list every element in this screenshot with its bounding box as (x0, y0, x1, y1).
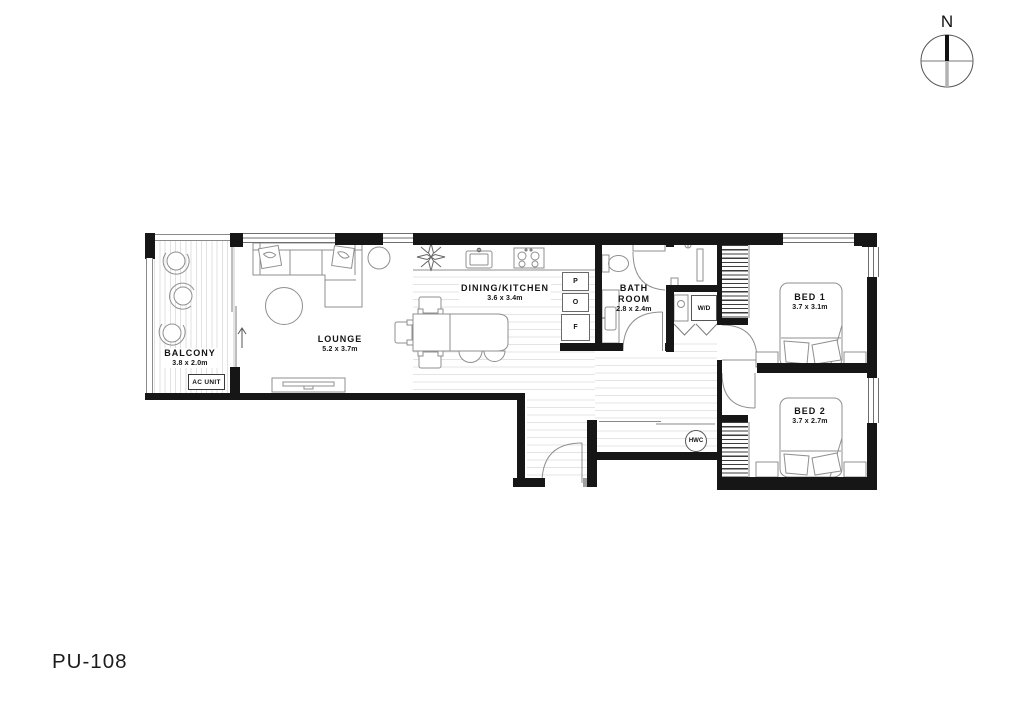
wall-segment (560, 343, 623, 351)
wall-segment (587, 420, 597, 487)
washer-dryer-tag: W/D (691, 295, 717, 321)
stool (459, 351, 482, 363)
wall-segment (666, 233, 674, 247)
room-name: LOUNGE (318, 334, 363, 345)
wall-segment (717, 360, 722, 373)
wall-segment (597, 452, 717, 460)
bed2-label: BED 2 3.7 x 2.7m (792, 406, 827, 426)
laundry-bifold-doors (674, 324, 717, 335)
window (243, 233, 335, 243)
window (783, 233, 854, 243)
pantry-tag: P (562, 272, 589, 291)
entry-direction-arrow (238, 328, 246, 348)
wall-segment (145, 233, 155, 259)
balcony-rail (155, 234, 230, 241)
balcony-slider-door (232, 247, 236, 367)
wall-segment (666, 292, 674, 352)
room-dims: 3.6 x 3.4m (461, 294, 549, 303)
wall-segment (145, 393, 525, 400)
compass-north-label: N (941, 12, 953, 32)
compass-icon (921, 35, 973, 87)
side-table (368, 247, 390, 269)
dining-kitchen-label: DINING/KITCHEN 3.6 x 3.4m (459, 283, 551, 303)
bed2-door (722, 373, 755, 408)
window (383, 233, 413, 243)
dining-table (413, 314, 450, 351)
round-rug (266, 288, 303, 325)
room-dims: 3.8 x 2.0m (164, 359, 216, 368)
wall-segment (717, 477, 877, 490)
room-name: BALCONY (164, 348, 216, 359)
balcony-rail (146, 258, 153, 393)
wall-segment (595, 233, 602, 351)
balcony-chair (163, 252, 189, 274)
island-bench (450, 314, 508, 351)
wall-segment (717, 373, 722, 490)
sofa (253, 243, 362, 307)
room-dims: 5.2 x 3.7m (318, 345, 363, 354)
nightstand (756, 462, 778, 477)
nightstand (844, 462, 866, 477)
laundry-tub (674, 295, 688, 321)
room-name: BED 1 (792, 292, 827, 303)
wall-segment (335, 233, 383, 245)
bed1-label: BED 1 3.7 x 3.1m (792, 292, 827, 312)
room-dims: 3.7 x 3.1m (792, 303, 827, 312)
fridge-tag: F (561, 314, 590, 341)
wall-segment (666, 285, 722, 292)
hwc-tag: HWC (685, 430, 707, 452)
bathroom-label: BATH ROOM 2.8 x 2.4m (616, 283, 651, 314)
bathroom-door (623, 312, 663, 351)
wall-segment (757, 363, 877, 373)
floor-plan-canvas: BALCONY 3.8 x 2.0m LOUNGE 5.2 x 3.7m DIN… (0, 0, 1024, 724)
balcony-label: BALCONY 3.8 x 2.0m (162, 348, 218, 368)
room-name: BATH (616, 283, 651, 294)
oven-tag: O (562, 293, 589, 312)
wall-segment (230, 233, 243, 247)
wall-segment (862, 233, 877, 247)
wall-segment (717, 415, 748, 422)
entry-door (541, 443, 587, 487)
room-dims: 2.8 x 2.4m (616, 305, 651, 314)
room-dims: 3.7 x 2.7m (792, 417, 827, 426)
wall-segment (517, 400, 525, 487)
wall-segment (717, 233, 722, 322)
dining-set (395, 297, 508, 368)
window (868, 247, 879, 277)
cooktop (514, 248, 544, 268)
stool (484, 351, 505, 362)
plant (417, 243, 445, 271)
room-name: DINING/KITCHEN (461, 283, 549, 294)
duct-shelf (671, 242, 703, 286)
wall-segment (854, 233, 862, 246)
window (868, 378, 879, 423)
balcony-chair (170, 283, 194, 309)
lounge-label: LOUNGE 5.2 x 3.7m (318, 334, 363, 354)
room-name: BED 2 (792, 406, 827, 417)
wall-segment (717, 318, 748, 325)
bed1-door (722, 325, 757, 360)
unit-id-label: PU-108 (52, 650, 128, 674)
tv-unit (272, 378, 345, 392)
wall-segment (513, 478, 545, 487)
ac-unit-tag: AC UNIT (188, 374, 225, 390)
hwc-slider-doors (599, 422, 715, 425)
room-name: ROOM (616, 294, 651, 305)
toilet (602, 255, 629, 272)
balcony-chair (159, 324, 185, 345)
